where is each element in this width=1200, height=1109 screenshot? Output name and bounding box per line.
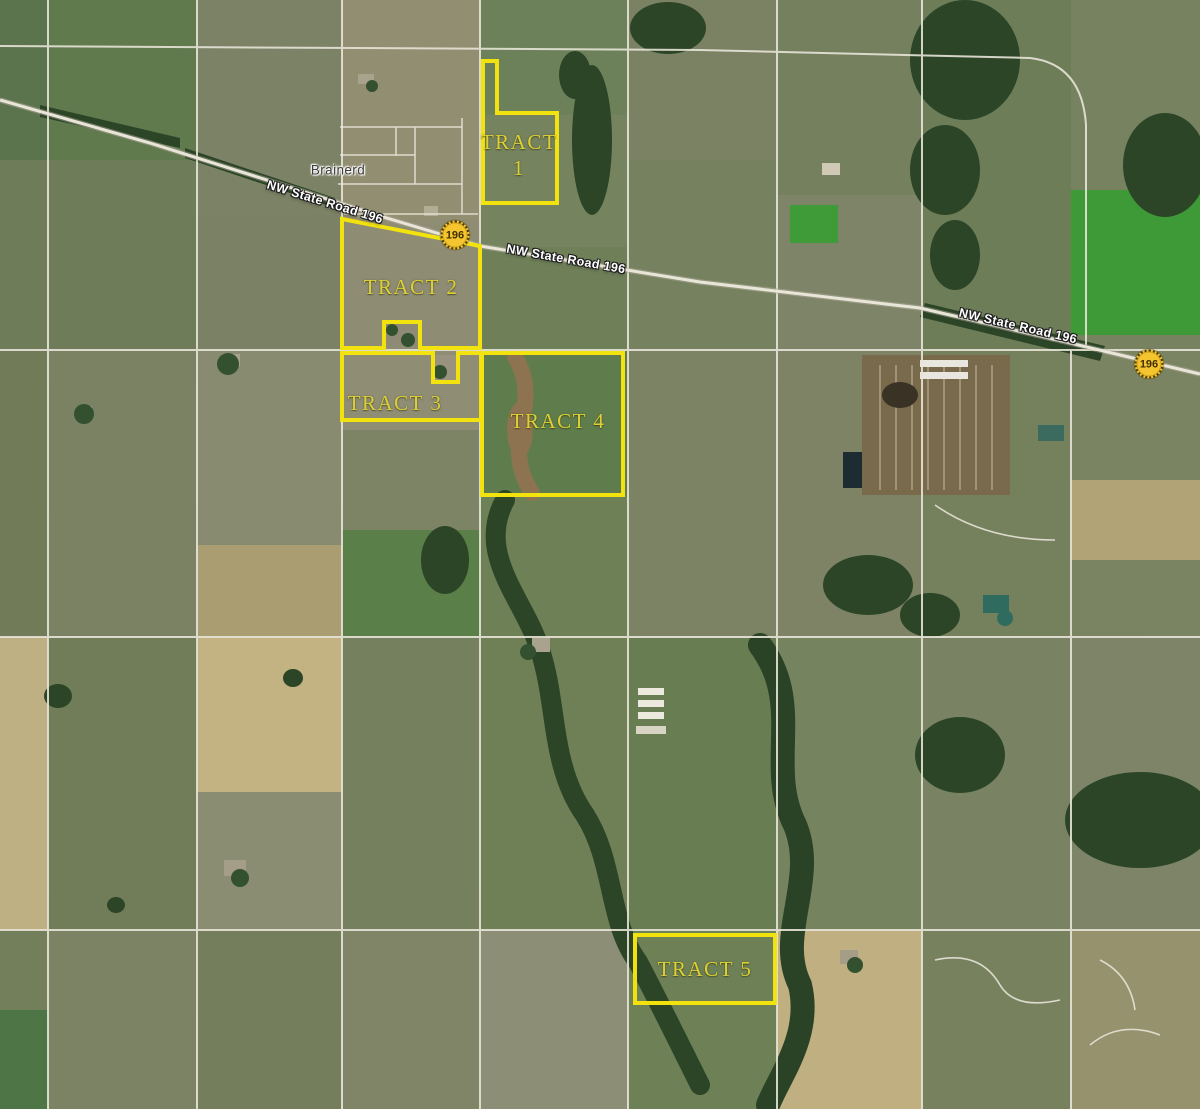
satellite-background — [0, 0, 1200, 1109]
satellite-map-canvas[interactable]: Brainerd NW State Road 196 NW State Road… — [0, 0, 1200, 1109]
feedlot-complex — [862, 355, 1010, 495]
